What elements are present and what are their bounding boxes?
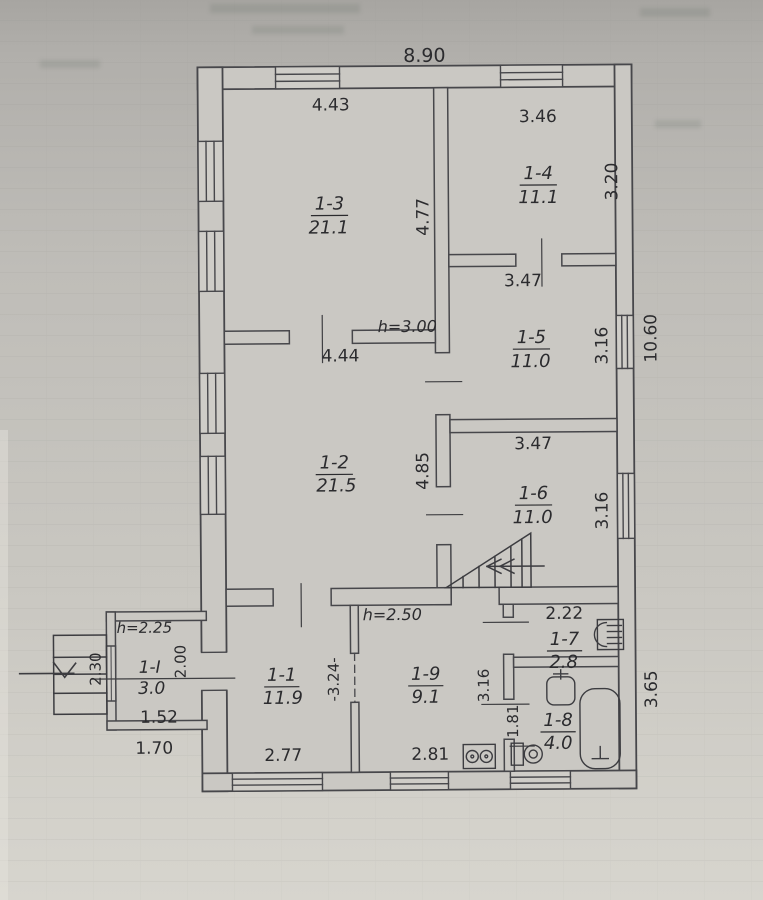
room-1-4-depth: 3.20 [602, 163, 622, 201]
dim-lower-right-height: 3.65 [642, 670, 662, 708]
room-1-1-area: 11.9 [263, 688, 303, 709]
height-vestibule: h=2.25 [117, 619, 173, 637]
room-1-i-id: 1-I [139, 658, 161, 678]
room-1-2-depth: 4.85 [413, 452, 433, 490]
window-icon [616, 315, 633, 368]
room-1-1-id: 1-1 [267, 665, 297, 686]
window-icon [200, 373, 225, 433]
room-1-8-area: 4.0 [544, 733, 573, 754]
height-main-rooms: h=3.00 [378, 317, 437, 336]
room-1-9-width: 2.81 [411, 745, 449, 765]
room-1-i-depth: 2.30 [87, 652, 105, 686]
window-icon [199, 231, 224, 291]
window-icon [275, 66, 339, 88]
window-icon [198, 141, 223, 201]
room-1-5-area: 11.0 [510, 351, 550, 372]
room-1-3-area: 21.1 [308, 217, 348, 238]
room-1-i-inner-width: 2.00 [171, 645, 189, 679]
height-hall: h=2.50 [363, 605, 422, 624]
room-1-3-width: 4.43 [312, 95, 350, 115]
room-1-4-id: 1-4 [523, 163, 553, 184]
dim-right-height: 10.60 [641, 314, 661, 363]
window-icon [232, 773, 322, 792]
room-1-2-area: 21.5 [316, 475, 356, 496]
room-1-6-depth: 3.16 [592, 492, 612, 530]
room-1-7-area: 2.8 [549, 652, 578, 673]
window-icon [390, 772, 448, 790]
room-1-2-width: 4.44 [321, 346, 359, 366]
dim-hall-side: 3.16 [475, 669, 493, 703]
doorway-icon [200, 652, 228, 690]
room-1-i-width: 1.52 [140, 708, 178, 728]
room-1-1-width: 2.77 [264, 746, 302, 766]
room-1-7-width: 2.22 [545, 604, 583, 624]
room-1-5-id: 1-5 [517, 327, 547, 348]
room-1-i-area: 3.0 [138, 679, 165, 699]
room-1-5-depth: 3.16 [592, 327, 612, 365]
window-icon [510, 771, 570, 789]
window-icon [617, 473, 634, 538]
window-icon [500, 65, 562, 87]
dim-top-width: 8.90 [403, 45, 445, 67]
room-1-9-area: 9.1 [411, 687, 440, 708]
room-1-6-area: 11.0 [513, 507, 553, 528]
room-1-6-id: 1-6 [519, 483, 549, 504]
room-1-9-id: 1-9 [411, 664, 441, 685]
room-1-i-outer-width: 1.70 [135, 739, 173, 759]
room-1-2-id: 1-2 [319, 452, 349, 473]
room-1-5-width: 3.47 [504, 271, 542, 291]
window-icon [200, 456, 225, 514]
wall-top [197, 64, 631, 89]
window-icon [107, 646, 116, 701]
room-1-6-width: 3.47 [514, 434, 552, 454]
paper-edge [0, 430, 8, 900]
scanned-floor-plan-page: 8.90 10.60 3.65 4.43 4.77 1-3 21.1 3.46 … [0, 0, 763, 900]
room-1-4-area: 11.1 [518, 187, 558, 208]
room-1-7-id: 1-7 [550, 629, 580, 650]
room-1-9-depth: -3.24- [325, 657, 343, 701]
room-1-4-width: 3.46 [519, 107, 557, 127]
room-1-8-id: 1-8 [543, 710, 573, 731]
floor-plan-svg: 8.90 10.60 3.65 4.43 4.77 1-3 21.1 3.46 … [0, 0, 763, 900]
room-1-3-id: 1-3 [315, 193, 345, 214]
room-1-8-depth: 1.81 [504, 704, 522, 738]
room-1-3-depth: 4.77 [413, 198, 433, 236]
